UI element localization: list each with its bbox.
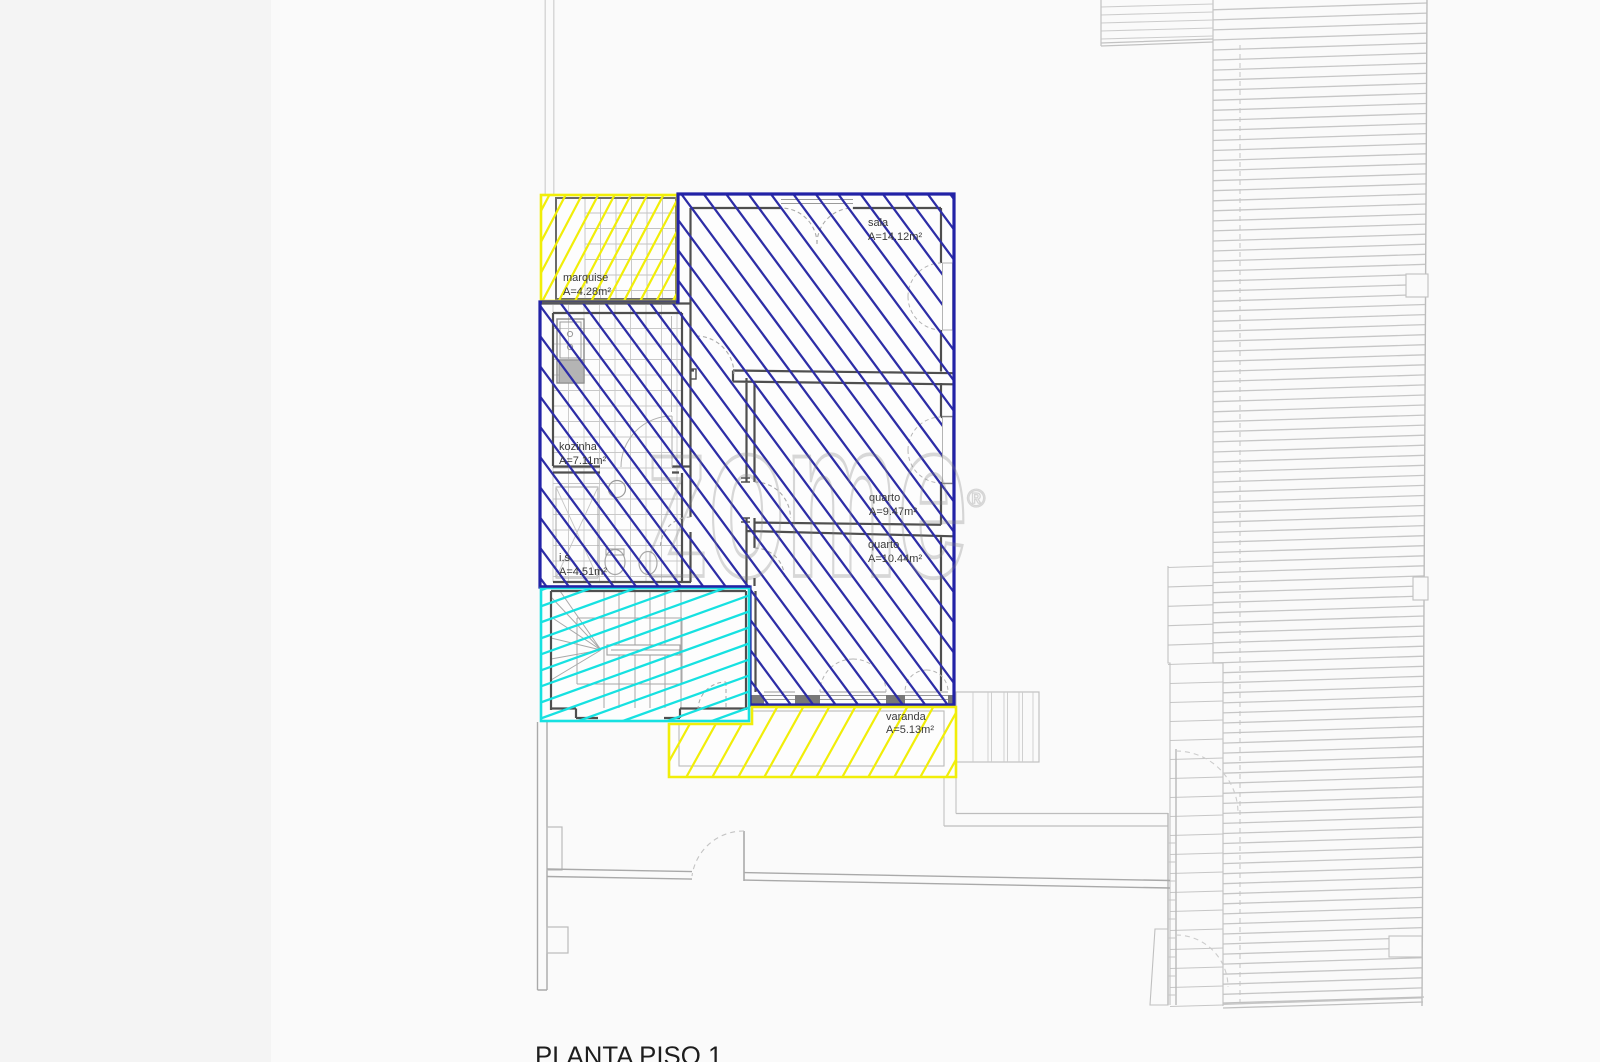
svg-text:zome: zome [645,371,968,624]
svg-text:®: ® [967,485,986,513]
svg-text:varanda: varanda [886,711,927,723]
svg-text:PLANTA PISO 1: PLANTA PISO 1 [535,1043,722,1062]
svg-text:A=7.11m²: A=7.11m² [559,455,607,467]
svg-text:i.s: i.s [559,552,571,564]
svg-text:A=5.13m²: A=5.13m² [886,724,934,736]
svg-text:kozinha: kozinha [559,441,598,453]
svg-text:marquise: marquise [563,272,608,284]
svg-text:A=4.28m²: A=4.28m² [563,286,611,298]
svg-text:A=14.12m²: A=14.12m² [868,231,922,243]
svg-text:A=4.51m²: A=4.51m² [559,566,607,578]
svg-text:sala: sala [868,217,889,229]
